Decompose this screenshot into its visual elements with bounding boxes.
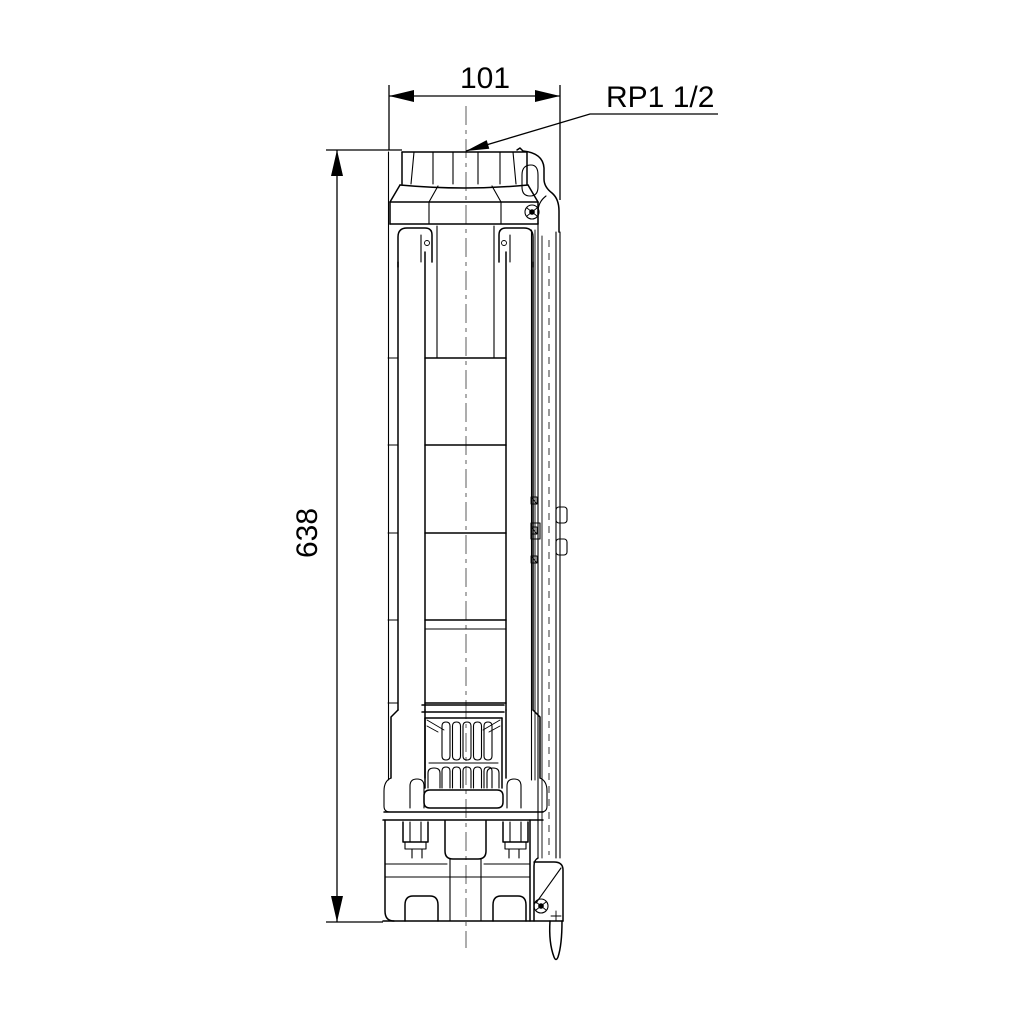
stay-bolt-nut-right	[503, 822, 528, 858]
cable-guard-bottom-bracket	[534, 858, 563, 960]
strap-right	[499, 228, 547, 812]
valve-casing	[390, 185, 538, 224]
leader-arrow-icon	[466, 140, 489, 151]
width-dimension-label: 101	[460, 62, 510, 95]
submersible-pump-dimensional-drawing: 101 638 RP1 1/2	[0, 0, 1024, 1024]
pump-sleeve	[388, 152, 535, 780]
connection-label: RP1 1/2	[606, 81, 714, 114]
stay-bolt-nut-left	[403, 822, 428, 858]
dimension-arrow-up-icon	[331, 150, 343, 176]
motor-flange	[383, 812, 543, 820]
height-dimension-label: 638	[291, 508, 324, 558]
pump-discharge-thread	[400, 152, 528, 188]
cable-guard	[517, 148, 567, 960]
technical-drawing-page: 101 638 RP1 1/2	[0, 0, 1024, 1024]
cable-guard-strip	[538, 232, 560, 858]
dimension-arrow-left-icon	[389, 90, 414, 102]
dimension-arrow-down-icon	[331, 896, 343, 922]
dimension-arrow-right-icon	[535, 90, 560, 102]
suction-strainer	[422, 705, 504, 808]
height-dimension: 638	[291, 150, 402, 922]
cable-guard-top-bracket	[517, 148, 559, 232]
